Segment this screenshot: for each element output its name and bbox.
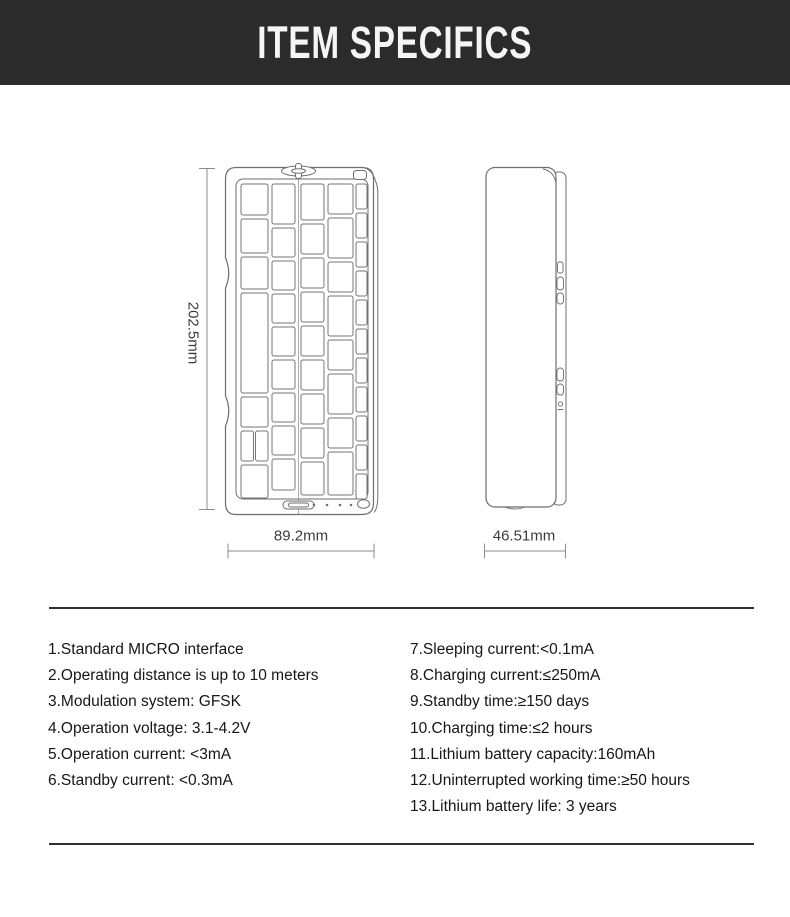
spec-list-right: 7.Sleeping current:<0.1mA 8.Charging cur… (410, 637, 690, 820)
spec-item-13: 13.Lithium battery life: 3 years (410, 794, 690, 820)
spec-item-5: 5.Operation current: <3mA (48, 742, 319, 768)
led-indicator-dots (313, 504, 353, 507)
spec-item-6: 6.Standby current: <0.3mA (48, 768, 319, 794)
keyboard-height-dimension-label: 202.5mm (185, 302, 202, 365)
key-column-d (328, 184, 353, 495)
spec-item-1: 1.Standard MICRO interface (48, 637, 319, 663)
product-diagram (0, 85, 790, 600)
hinge-top (282, 164, 316, 179)
power-button-drawing (358, 500, 370, 509)
page-title: ITEM SPECIFICS (258, 17, 533, 69)
key-column-b (272, 184, 295, 490)
spec-item-4: 4.Operation voltage: 3.1-4.2V (48, 716, 319, 742)
hinge-bottom (283, 501, 314, 509)
divider-bottom (49, 843, 754, 845)
spec-list-left: 1.Standard MICRO interface 2.Operating d… (48, 637, 319, 794)
key-column-e (356, 184, 367, 499)
spec-item-11: 11.Lithium battery capacity:160mAh (410, 742, 690, 768)
keyboard-width-dimension-label: 89.2mm (274, 528, 328, 545)
keyboard-top-view-drawing (226, 164, 378, 515)
spec-item-9: 9.Standby time:≥150 days (410, 689, 690, 715)
spec-item-12: 12.Uninterrupted working time:≥50 hours (410, 768, 690, 794)
side-buttons (557, 262, 564, 410)
spec-sheet-page: ITEM SPECIFICS (0, 0, 790, 917)
spec-item-2: 2.Operating distance is up to 10 meters (48, 663, 319, 689)
spec-item-7: 7.Sleeping current:<0.1mA (410, 637, 690, 663)
key-column-a (241, 184, 268, 498)
header-band: ITEM SPECIFICS (0, 0, 790, 85)
spec-item-10: 10.Charging time:≤2 hours (410, 716, 690, 742)
side-width-dimension-label: 46.51mm (493, 528, 556, 545)
spec-item-3: 3.Modulation system: GFSK (48, 689, 319, 715)
key-column-c (301, 184, 324, 495)
indicator-window (354, 171, 367, 180)
divider-top (49, 607, 754, 609)
spec-item-8: 8.Charging current:≤250mA (410, 663, 690, 689)
keyboard-side-view-drawing (486, 168, 566, 510)
